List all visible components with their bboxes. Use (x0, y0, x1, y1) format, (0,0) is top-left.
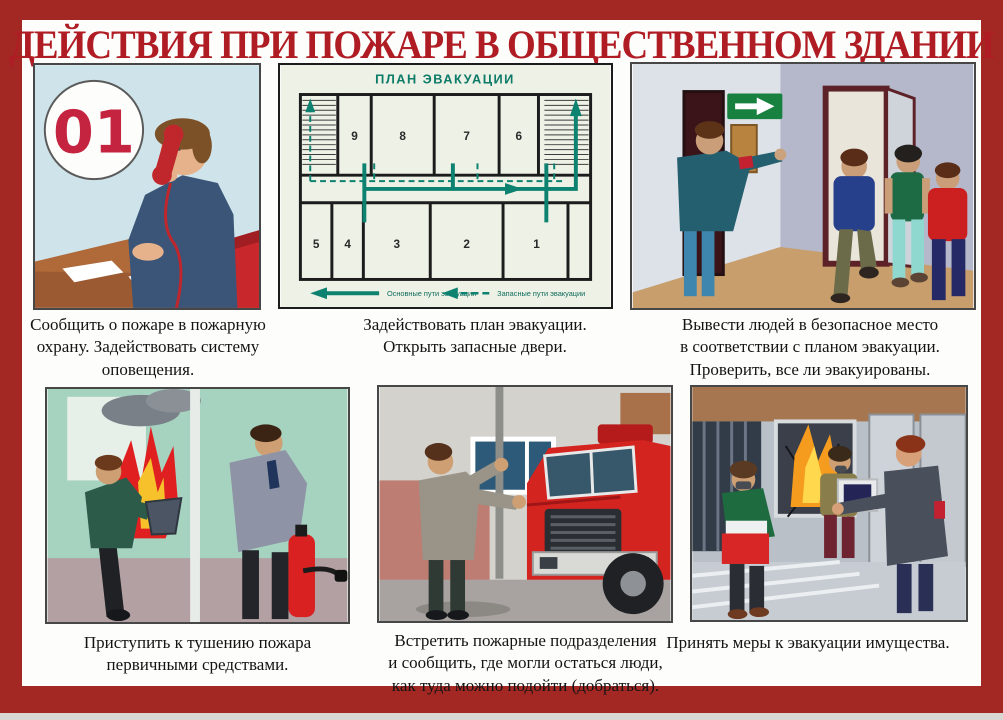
grille (545, 509, 622, 554)
exit-sign (727, 94, 782, 120)
evacuation-plan-illustration: ПЛАН ЭВАКУАЦИИ (280, 65, 611, 307)
svg-text:5: 5 (313, 237, 320, 251)
caption-evacuate-people: Вывести людей в безопасное место в соотв… (650, 314, 970, 381)
mask (736, 481, 752, 489)
panel-meet-brigade (377, 385, 673, 623)
fire-safety-poster: ДЕЙСТВИЯ ПРИ ПОЖАРЕ В ОБЩЕСТВЕННОМ ЗДАНИ… (0, 0, 1003, 720)
svg-text:2: 2 (463, 237, 470, 251)
evacuate-people-illustration (632, 64, 974, 308)
svg-text:6: 6 (516, 129, 523, 143)
caption-evacuation-plan: Задействовать план эвакуации. Открыть за… (320, 314, 630, 359)
caption-extinguish: Приступить к тушению пожара первичными с… (40, 632, 355, 677)
caption-evacuate-property: Принять меры к эвакуации имущества. (648, 632, 968, 654)
legend-reserve-label: Запасные пути эвакуации (497, 289, 585, 298)
plan-title: ПЛАН ЭВАКУАЦИИ (375, 72, 515, 87)
emergency-number: 01 (53, 98, 135, 167)
bucket-icon (146, 498, 181, 534)
panel-evacuate-people (630, 62, 976, 310)
svg-text:4: 4 (344, 237, 351, 251)
panel-evacuate-property (690, 385, 968, 622)
scan-edge (0, 713, 1003, 720)
svg-text:9: 9 (351, 129, 358, 143)
extinguish-illustration (47, 389, 348, 622)
wall-divider (190, 389, 200, 622)
red-armband (738, 156, 753, 170)
svg-text:3: 3 (394, 237, 401, 251)
caption-meet-brigade: Встретить пожарные подразделения и сообщ… (368, 630, 683, 697)
report-fire-illustration: 01 (35, 65, 259, 308)
svg-text:8: 8 (399, 129, 406, 143)
panel-extinguish (45, 387, 350, 624)
caption-report-fire: Сообщить о пожаре в пожарную охрану. Зад… (8, 314, 288, 381)
device (726, 521, 767, 535)
svg-text:1: 1 (533, 237, 540, 251)
red-armband (934, 501, 945, 519)
evacuate-property-illustration (692, 387, 966, 620)
drainpipe (496, 387, 504, 579)
panel-report-fire: 01 (33, 63, 261, 310)
panel-evacuation-plan: ПЛАН ЭВАКУАЦИИ (278, 63, 613, 309)
red-box (722, 533, 769, 563)
svg-text:7: 7 (463, 129, 470, 143)
meet-brigade-illustration (379, 387, 671, 621)
